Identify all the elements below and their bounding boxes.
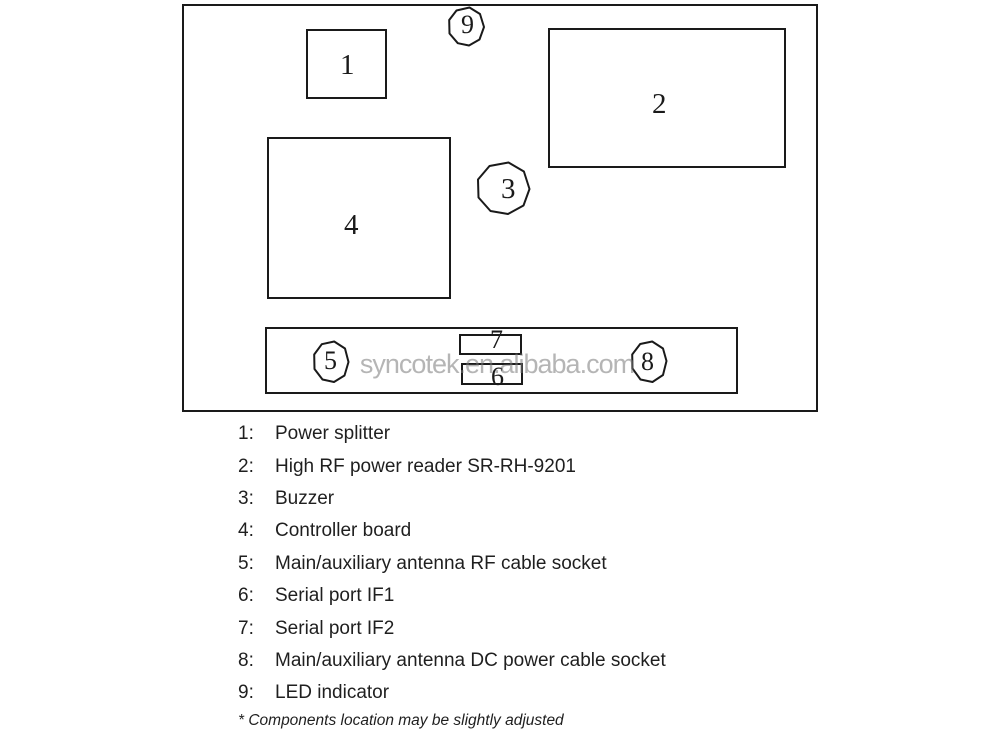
legend-item-9: 9: LED indicator — [238, 677, 798, 709]
legend-item-8: 8: Main/auxiliary antenna DC power cable… — [238, 645, 798, 677]
legend-item-2: 2: High RF power reader SR-RH-9201 — [238, 450, 798, 482]
page: 1 2 3 4 5 6 7 8 9 syncotek.en.alibaba.co… — [0, 0, 1000, 733]
legend-item-1: 1: Power splitter — [238, 418, 798, 450]
legend-number: 8: — [238, 650, 275, 672]
component-number-8: 8 — [641, 349, 654, 375]
component-rect-controller-board — [267, 137, 451, 299]
component-rect-rf-reader — [548, 28, 786, 168]
legend-number: 1: — [238, 423, 275, 445]
legend-label: LED indicator — [275, 682, 798, 704]
legend-number: 6: — [238, 585, 275, 607]
legend-item-6: 6: Serial port IF1 — [238, 580, 798, 612]
legend-number: 9: — [238, 682, 275, 704]
component-number-2: 2 — [652, 90, 667, 119]
component-number-3: 3 — [501, 175, 516, 204]
legend: 1: Power splitter 2: High RF power reade… — [238, 418, 798, 710]
legend-item-3: 3: Buzzer — [238, 483, 798, 515]
legend-label: Power splitter — [275, 423, 798, 445]
legend-number: 4: — [238, 520, 275, 542]
legend-label: Serial port IF1 — [275, 585, 798, 607]
watermark-text: syncotek.en.alibaba.com — [360, 349, 634, 380]
legend-item-4: 4: Controller board — [238, 515, 798, 547]
component-number-1: 1 — [340, 51, 355, 80]
component-number-4: 4 — [344, 211, 359, 240]
legend-label: High RF power reader SR-RH-9201 — [275, 456, 798, 478]
legend-label: Main/auxiliary antenna DC power cable so… — [275, 650, 798, 672]
legend-item-7: 7: Serial port IF2 — [238, 612, 798, 644]
footnote: * Components location may be slightly ad… — [238, 712, 564, 730]
legend-number: 5: — [238, 553, 275, 575]
legend-number: 2: — [238, 456, 275, 478]
component-number-9: 9 — [461, 12, 474, 38]
legend-label: Buzzer — [275, 488, 798, 510]
legend-number: 3: — [238, 488, 275, 510]
legend-label: Serial port IF2 — [275, 618, 798, 640]
legend-label: Controller board — [275, 520, 798, 542]
component-number-5: 5 — [324, 348, 337, 374]
legend-item-5: 5: Main/auxiliary antenna RF cable socke… — [238, 548, 798, 580]
legend-number: 7: — [238, 618, 275, 640]
legend-label: Main/auxiliary antenna RF cable socket — [275, 553, 798, 575]
